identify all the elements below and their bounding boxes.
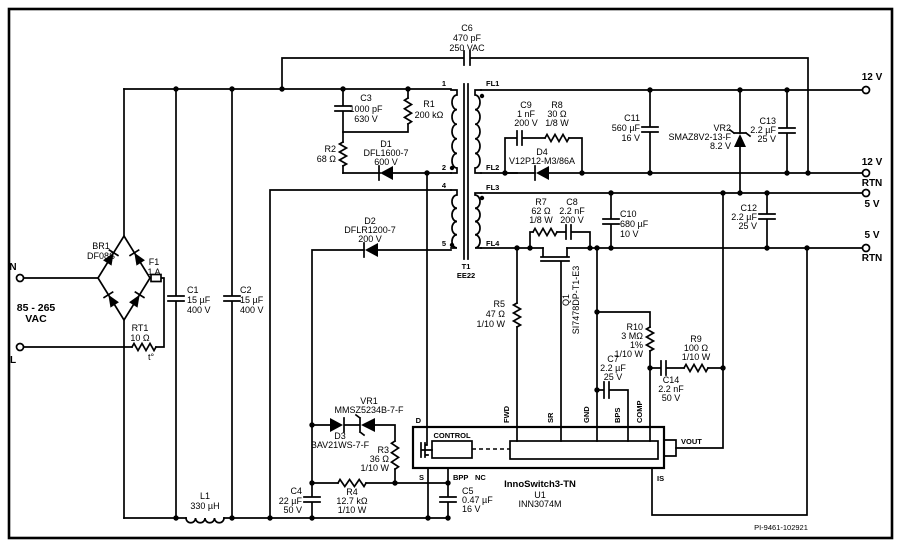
resistor-r10 bbox=[647, 327, 654, 351]
label-br1-part: DF08S bbox=[87, 251, 115, 261]
label-c7-rat: 25 V bbox=[604, 372, 623, 382]
label-r1-ref: R1 bbox=[423, 99, 435, 109]
resistor-r1 bbox=[405, 98, 412, 124]
label-input-l: L bbox=[10, 355, 16, 366]
label-t1-fl2: FL2 bbox=[486, 163, 499, 172]
terminal-12v bbox=[863, 87, 870, 94]
label-out-5v: 5 V bbox=[864, 199, 879, 210]
label-ic-pin-vout: VOUT bbox=[681, 437, 702, 446]
label-c3-ref: C3 bbox=[360, 93, 372, 103]
phase-dot bbox=[450, 243, 454, 247]
label-c10-val: 680 µF bbox=[620, 219, 649, 229]
transformer-core bbox=[464, 84, 468, 259]
label-t1-pin2: 2 bbox=[442, 163, 446, 172]
diode-d4 bbox=[535, 166, 549, 180]
label-t1-pin5: 5 bbox=[442, 239, 446, 248]
label-c11-rat: 16 V bbox=[621, 133, 640, 143]
label-r8-rat: 1/8 W bbox=[545, 118, 569, 128]
label-out-5v-rtn-2: RTN bbox=[862, 253, 883, 264]
phase-dot bbox=[450, 166, 454, 170]
phase-dot bbox=[480, 196, 484, 200]
resistor-r8 bbox=[545, 135, 569, 142]
circuit-schematic: C6 470 pF 250 VAC C3 1000 pF 630 V R1 20… bbox=[0, 0, 900, 547]
label-r9-rat: 1/10 W bbox=[682, 352, 711, 362]
resistor-r5 bbox=[514, 303, 521, 327]
resistor-r2 bbox=[340, 142, 347, 166]
label-q1-part: SI7478DP-T1-E3 bbox=[571, 266, 581, 335]
label-out-5v-rtn-1: 5 V bbox=[864, 230, 879, 241]
label-t1-fl4: FL4 bbox=[486, 239, 500, 248]
label-c3-val: 1000 pF bbox=[349, 104, 383, 114]
label-c10-rat: 10 V bbox=[620, 229, 639, 239]
resistor-r7 bbox=[533, 229, 557, 236]
label-d2-rat: 200 V bbox=[358, 234, 382, 244]
document-number: PI-9461-102921 bbox=[754, 523, 808, 532]
label-t1-fl1: FL1 bbox=[486, 79, 499, 88]
label-rt1-val: 10 Ω bbox=[130, 333, 150, 343]
label-c2-rat: 400 V bbox=[240, 305, 264, 315]
label-ic-pin-nc: NC bbox=[475, 473, 486, 482]
label-c6-ref: C6 bbox=[461, 23, 473, 33]
label-d3-part: BAV21WS-7-F bbox=[311, 440, 370, 450]
label-c8-rat: 200 V bbox=[560, 215, 584, 225]
label-ic-family: InnoSwitch3-TN bbox=[504, 479, 576, 490]
label-input-n: N bbox=[9, 262, 16, 273]
label-r5-rat: 1/10 W bbox=[476, 319, 505, 329]
phase-dot bbox=[480, 94, 484, 98]
label-ic-part: INN3074M bbox=[518, 499, 561, 509]
label-t1-part: EE22 bbox=[457, 271, 475, 280]
label-r3-rat: 1/10 W bbox=[360, 463, 389, 473]
label-rt1-ref: RT1 bbox=[132, 323, 149, 333]
label-ic-pin-comp: COMP bbox=[635, 401, 644, 424]
terminal-n bbox=[17, 275, 24, 282]
label-ic-pin-fwd: FWD bbox=[502, 405, 511, 423]
label-c2-ref: C2 bbox=[240, 285, 252, 295]
label-c4-ref: C4 bbox=[290, 486, 302, 496]
label-c11-val: 560 µF bbox=[612, 123, 641, 133]
label-br1-ref: BR1 bbox=[92, 241, 110, 251]
label-c2-val: 15 µF bbox=[240, 295, 264, 305]
label-c4-rat: 50 V bbox=[283, 505, 302, 515]
diode-d3 bbox=[330, 418, 344, 432]
label-c10-ref: C10 bbox=[620, 209, 637, 219]
terminal-5v bbox=[863, 190, 870, 197]
terminal-5v-rtn bbox=[863, 245, 870, 252]
label-c1-ref: C1 bbox=[187, 285, 199, 295]
label-ic-pin-is: IS bbox=[657, 474, 664, 483]
label-c13-rat: 25 V bbox=[757, 134, 776, 144]
label-d4-part: V12P12-M3/86A bbox=[509, 156, 575, 166]
label-f1-val: 1 A bbox=[147, 267, 160, 277]
resistor-r3 bbox=[392, 441, 399, 469]
label-c14-rat: 50 V bbox=[662, 393, 681, 403]
label-ic-pin-d: D bbox=[416, 416, 422, 425]
label-r10-rat: 1/10 W bbox=[614, 349, 643, 359]
resistor-r9 bbox=[684, 365, 708, 372]
label-vr2-rat: 8.2 V bbox=[710, 141, 731, 151]
label-r5-ref: R5 bbox=[493, 299, 505, 309]
diode-d2 bbox=[364, 243, 378, 257]
label-c6-rat: 250 VAC bbox=[449, 43, 485, 53]
label-r4-rat: 1/10 W bbox=[338, 505, 367, 515]
label-q1-ref: Q1 bbox=[561, 294, 571, 306]
label-c6-val: 470 pF bbox=[453, 33, 482, 43]
terminal-12v-rtn bbox=[863, 170, 870, 177]
label-c12-rat: 25 V bbox=[738, 221, 757, 231]
label-t1-ref: T1 bbox=[462, 262, 471, 271]
transformer-t1 bbox=[451, 84, 481, 259]
thermistor-rt1 bbox=[132, 344, 156, 351]
label-c5-rat: 16 V bbox=[462, 504, 481, 514]
terminal-l bbox=[17, 344, 24, 351]
label-c11-ref: C11 bbox=[624, 113, 640, 123]
resistor-r4 bbox=[338, 480, 366, 487]
label-r2-val: 68 Ω bbox=[317, 154, 337, 164]
label-c1-rat: 400 V bbox=[187, 305, 211, 315]
label-ic-pin-s: S bbox=[419, 473, 424, 482]
label-input-range-2: VAC bbox=[25, 313, 47, 325]
label-ic-pin-gnd: GND bbox=[582, 406, 591, 423]
label-d1-rat: 600 V bbox=[374, 157, 398, 167]
label-out-12v-rtn-1: 12 V bbox=[862, 157, 883, 168]
label-c1-val: 15 µF bbox=[187, 295, 211, 305]
zener-vr2 bbox=[730, 130, 750, 147]
label-r1-val: 200 kΩ bbox=[415, 110, 444, 120]
inductor-l1 bbox=[186, 518, 224, 523]
label-t1-fl3: FL3 bbox=[486, 183, 499, 192]
label-f1-ref: F1 bbox=[149, 257, 160, 267]
label-rt1-note: t° bbox=[148, 352, 155, 362]
label-r5-val: 47 Ω bbox=[486, 309, 506, 319]
label-c9-rat: 200 V bbox=[514, 118, 538, 128]
label-t1-pin4: 4 bbox=[442, 181, 447, 190]
label-r7-rat: 1/8 W bbox=[529, 215, 553, 225]
label-l1-val: 330 µH bbox=[190, 501, 219, 511]
label-ic-pin-bps: BPS bbox=[613, 408, 622, 423]
label-c3-rat: 630 V bbox=[354, 114, 378, 124]
diode-d1 bbox=[379, 166, 393, 180]
label-l1-ref: L1 bbox=[200, 491, 210, 501]
label-vr1-part: MMSZ5234B-7-F bbox=[334, 405, 404, 415]
label-t1-pin1: 1 bbox=[442, 79, 446, 88]
label-ic-pin-sr: SR bbox=[546, 412, 555, 423]
label-r2-ref: R2 bbox=[324, 144, 336, 154]
schematic-page: C6 470 pF 250 VAC C3 1000 pF 630 V R1 20… bbox=[0, 0, 900, 547]
label-ic-control: CONTROL bbox=[433, 431, 470, 440]
label-ic-pin-bpp: BPP bbox=[453, 473, 468, 482]
label-out-12v-rtn-2: RTN bbox=[862, 178, 883, 189]
label-out-12v: 12 V bbox=[862, 72, 883, 83]
